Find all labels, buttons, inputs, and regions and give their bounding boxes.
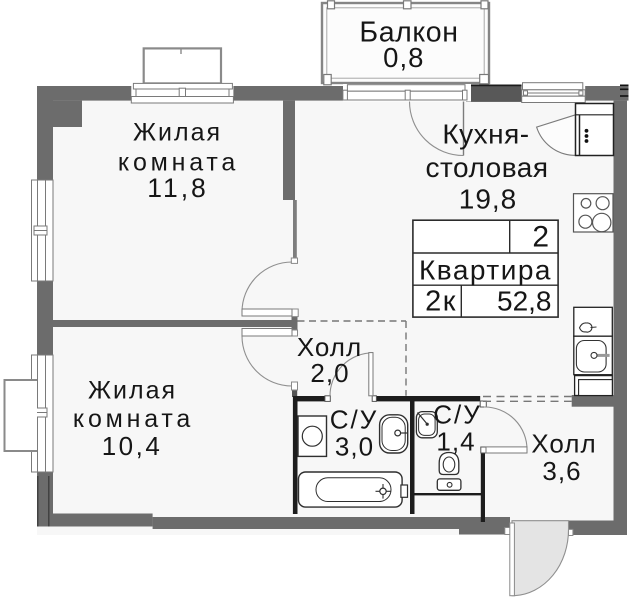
svg-text:Кухня-: Кухня- (442, 119, 529, 150)
svg-text:10,4: 10,4 (102, 431, 163, 461)
svg-text:С/У: С/У (433, 400, 482, 430)
svg-text:19,8: 19,8 (459, 184, 518, 215)
svg-text:3,0: 3,0 (335, 432, 374, 462)
svg-text:Холл: Холл (531, 429, 596, 459)
svg-text:2: 2 (532, 221, 549, 254)
svg-text:Квартира: Квартира (419, 255, 552, 286)
svg-text:С/У: С/У (330, 405, 379, 435)
svg-text:52,8: 52,8 (497, 286, 552, 317)
svg-text:11,8: 11,8 (147, 173, 209, 203)
svg-text:1,4: 1,4 (436, 427, 475, 457)
svg-text:комната: комната (73, 405, 194, 433)
svg-text:0,8: 0,8 (383, 42, 424, 73)
svg-text:Жилая: Жилая (133, 119, 222, 147)
svg-text:2,0: 2,0 (310, 358, 349, 388)
svg-text:2к: 2к (425, 286, 457, 318)
svg-text:столовая: столовая (426, 152, 549, 183)
svg-text:Жилая: Жилая (88, 377, 177, 405)
svg-text:3,6: 3,6 (542, 456, 581, 486)
